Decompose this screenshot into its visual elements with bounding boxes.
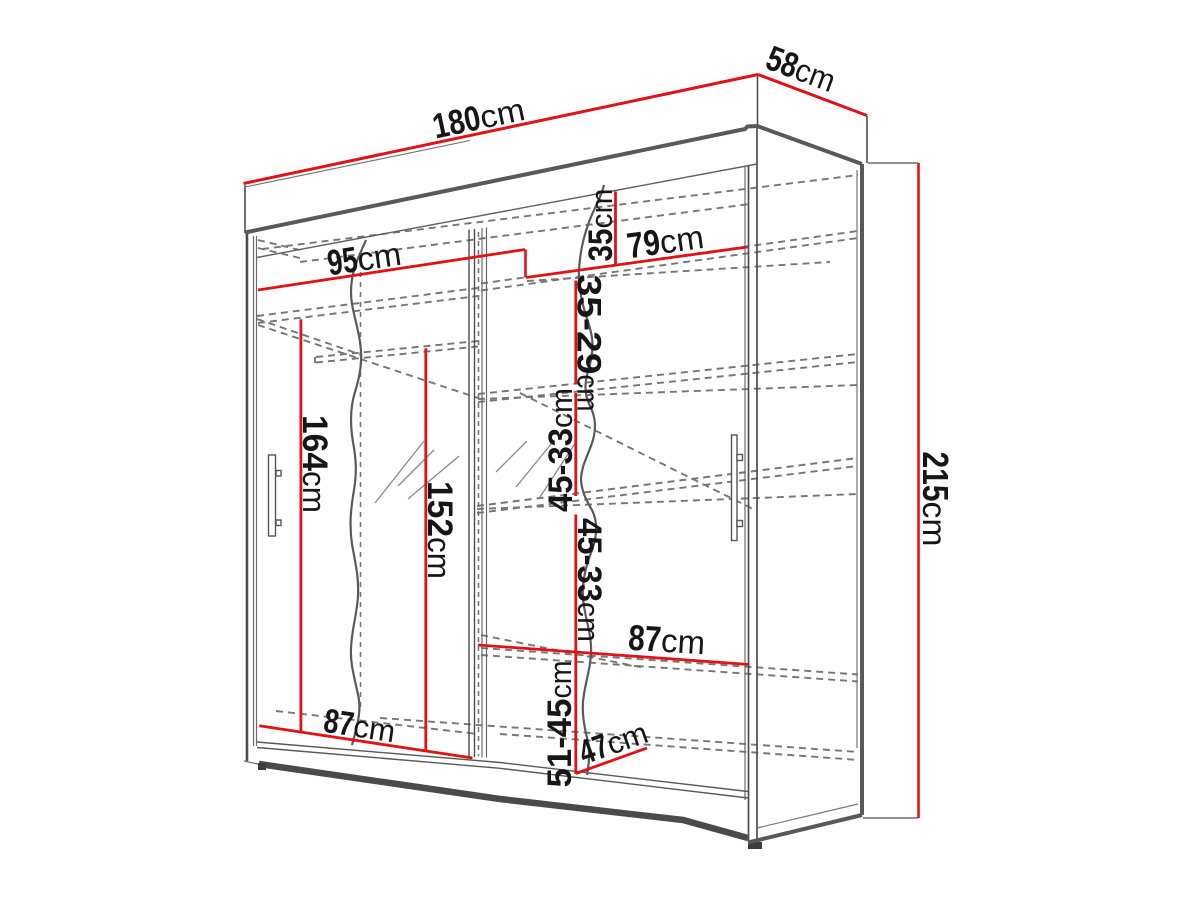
svg-text:45-33cm: 45-33cm (542, 388, 580, 512)
svg-text:164cm: 164cm (295, 415, 334, 513)
svg-text:35cm: 35cm (582, 189, 620, 262)
svg-text:87cm: 87cm (627, 617, 706, 663)
svg-text:215cm: 215cm (915, 452, 956, 547)
svg-text:51-45cm: 51-45cm (541, 661, 579, 788)
svg-text:45-33cm: 45-33cm (570, 518, 608, 642)
svg-text:152cm: 152cm (420, 481, 459, 579)
